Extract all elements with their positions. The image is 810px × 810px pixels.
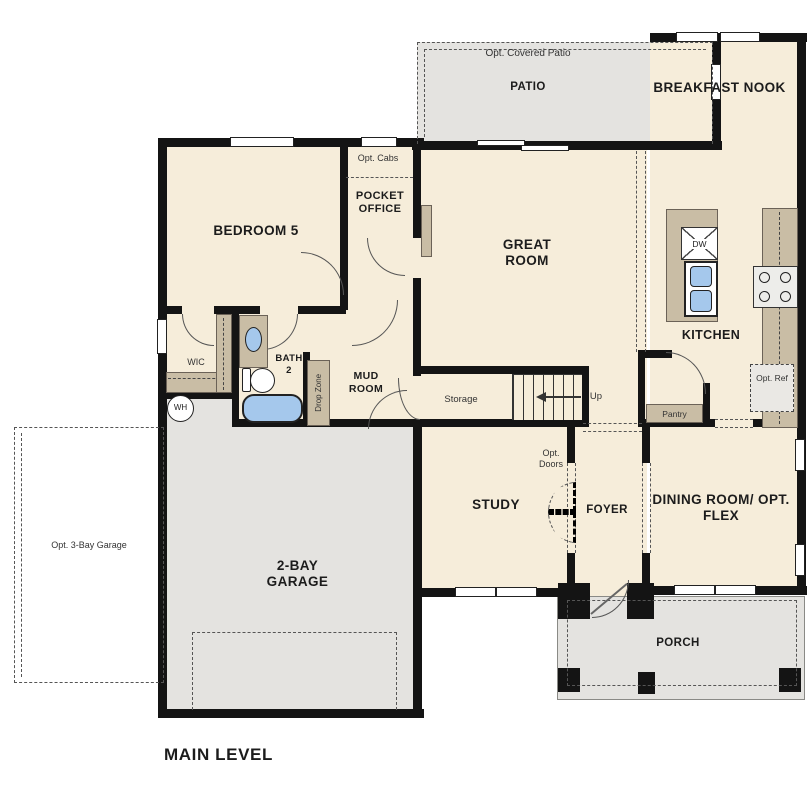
wall <box>642 423 650 463</box>
label-storage: Storage <box>429 394 493 405</box>
label-patio: PATIO <box>428 80 628 94</box>
label-2bay-garage: 2-BAY GARAGE <box>250 558 345 591</box>
label-opt-ref: Opt. Ref <box>752 373 792 383</box>
bathtub-icon <box>242 394 303 423</box>
water-heater-icon: WH <box>167 395 194 422</box>
window <box>720 32 760 42</box>
label-porch: PORCH <box>628 636 728 650</box>
wall <box>158 306 182 314</box>
label-up: Up <box>585 391 607 402</box>
window <box>455 587 496 597</box>
wall <box>413 141 421 238</box>
label-foyer: FOYER <box>574 503 640 517</box>
floor-plan: DW WH Opt. Covered Patio PATIO BREAKFAST… <box>0 0 810 810</box>
label-study: STUDY <box>450 497 542 513</box>
label-pantry: Pantry <box>647 409 702 419</box>
wall <box>214 306 260 314</box>
label-drop-zone: Drop Zone <box>314 363 324 423</box>
kitchen-sink-icon <box>684 261 718 317</box>
refrigerator-icon <box>750 364 794 412</box>
media-niche <box>421 205 432 257</box>
label-bath-2: BATH 2 <box>272 353 306 376</box>
window <box>795 544 805 576</box>
wall <box>232 314 239 427</box>
window <box>676 32 718 42</box>
label-breakfast-nook: BREAKFAST NOOK <box>648 80 791 96</box>
stairs-up-arrowhead <box>536 392 546 402</box>
dashed-opening <box>14 427 164 683</box>
wall <box>638 350 645 427</box>
window <box>795 439 805 471</box>
window <box>496 587 537 597</box>
window <box>674 585 715 595</box>
label-kitchen: KITCHEN <box>661 328 761 343</box>
label-opt-cabs: Opt. Cabs <box>345 153 411 164</box>
stairs-up-arrow-line <box>545 396 581 398</box>
water-heater-label: WH <box>174 403 187 412</box>
window <box>230 137 294 147</box>
label-opt-3bay-garage: Opt. 3-Bay Garage <box>39 540 139 551</box>
window <box>157 319 167 354</box>
dashed-opening <box>21 433 22 677</box>
label-dining-room: DINING ROOM/ OPT. FLEX <box>652 492 790 525</box>
dashed-opening <box>642 463 651 553</box>
label-pocket-office: POCKET OFFICE <box>346 190 414 217</box>
wic-shelving-side <box>216 314 232 393</box>
label-wic: WIC <box>171 357 221 368</box>
bath-sink-icon <box>245 327 262 352</box>
wall <box>413 419 585 427</box>
dashed-opening <box>715 419 753 428</box>
cooktop-icon <box>753 266 798 308</box>
label-bedroom-5: BEDROOM 5 <box>166 223 346 239</box>
label-opt-doors: Opt. Doors <box>530 448 572 470</box>
label-mud-room: MUD ROOM <box>337 370 395 396</box>
wic-shelf-line-vert <box>223 318 224 390</box>
page-title: MAIN LEVEL <box>164 745 384 766</box>
window <box>361 137 397 147</box>
dishwasher-icon: DW <box>681 227 718 260</box>
window <box>715 585 756 595</box>
label-opt-covered-patio: Opt. Covered Patio <box>428 48 628 60</box>
wall <box>413 423 422 718</box>
dashed-opening <box>636 151 646 352</box>
wall <box>413 366 588 374</box>
dashed-opening <box>346 177 413 178</box>
dishwasher-label: DW <box>691 239 707 249</box>
window <box>521 145 569 151</box>
label-great-room: GREAT ROOM <box>481 237 573 270</box>
wall <box>158 709 424 718</box>
wall <box>298 306 346 314</box>
wall <box>797 33 806 595</box>
dashed-opening <box>192 632 397 710</box>
dashed-opening <box>583 423 642 432</box>
